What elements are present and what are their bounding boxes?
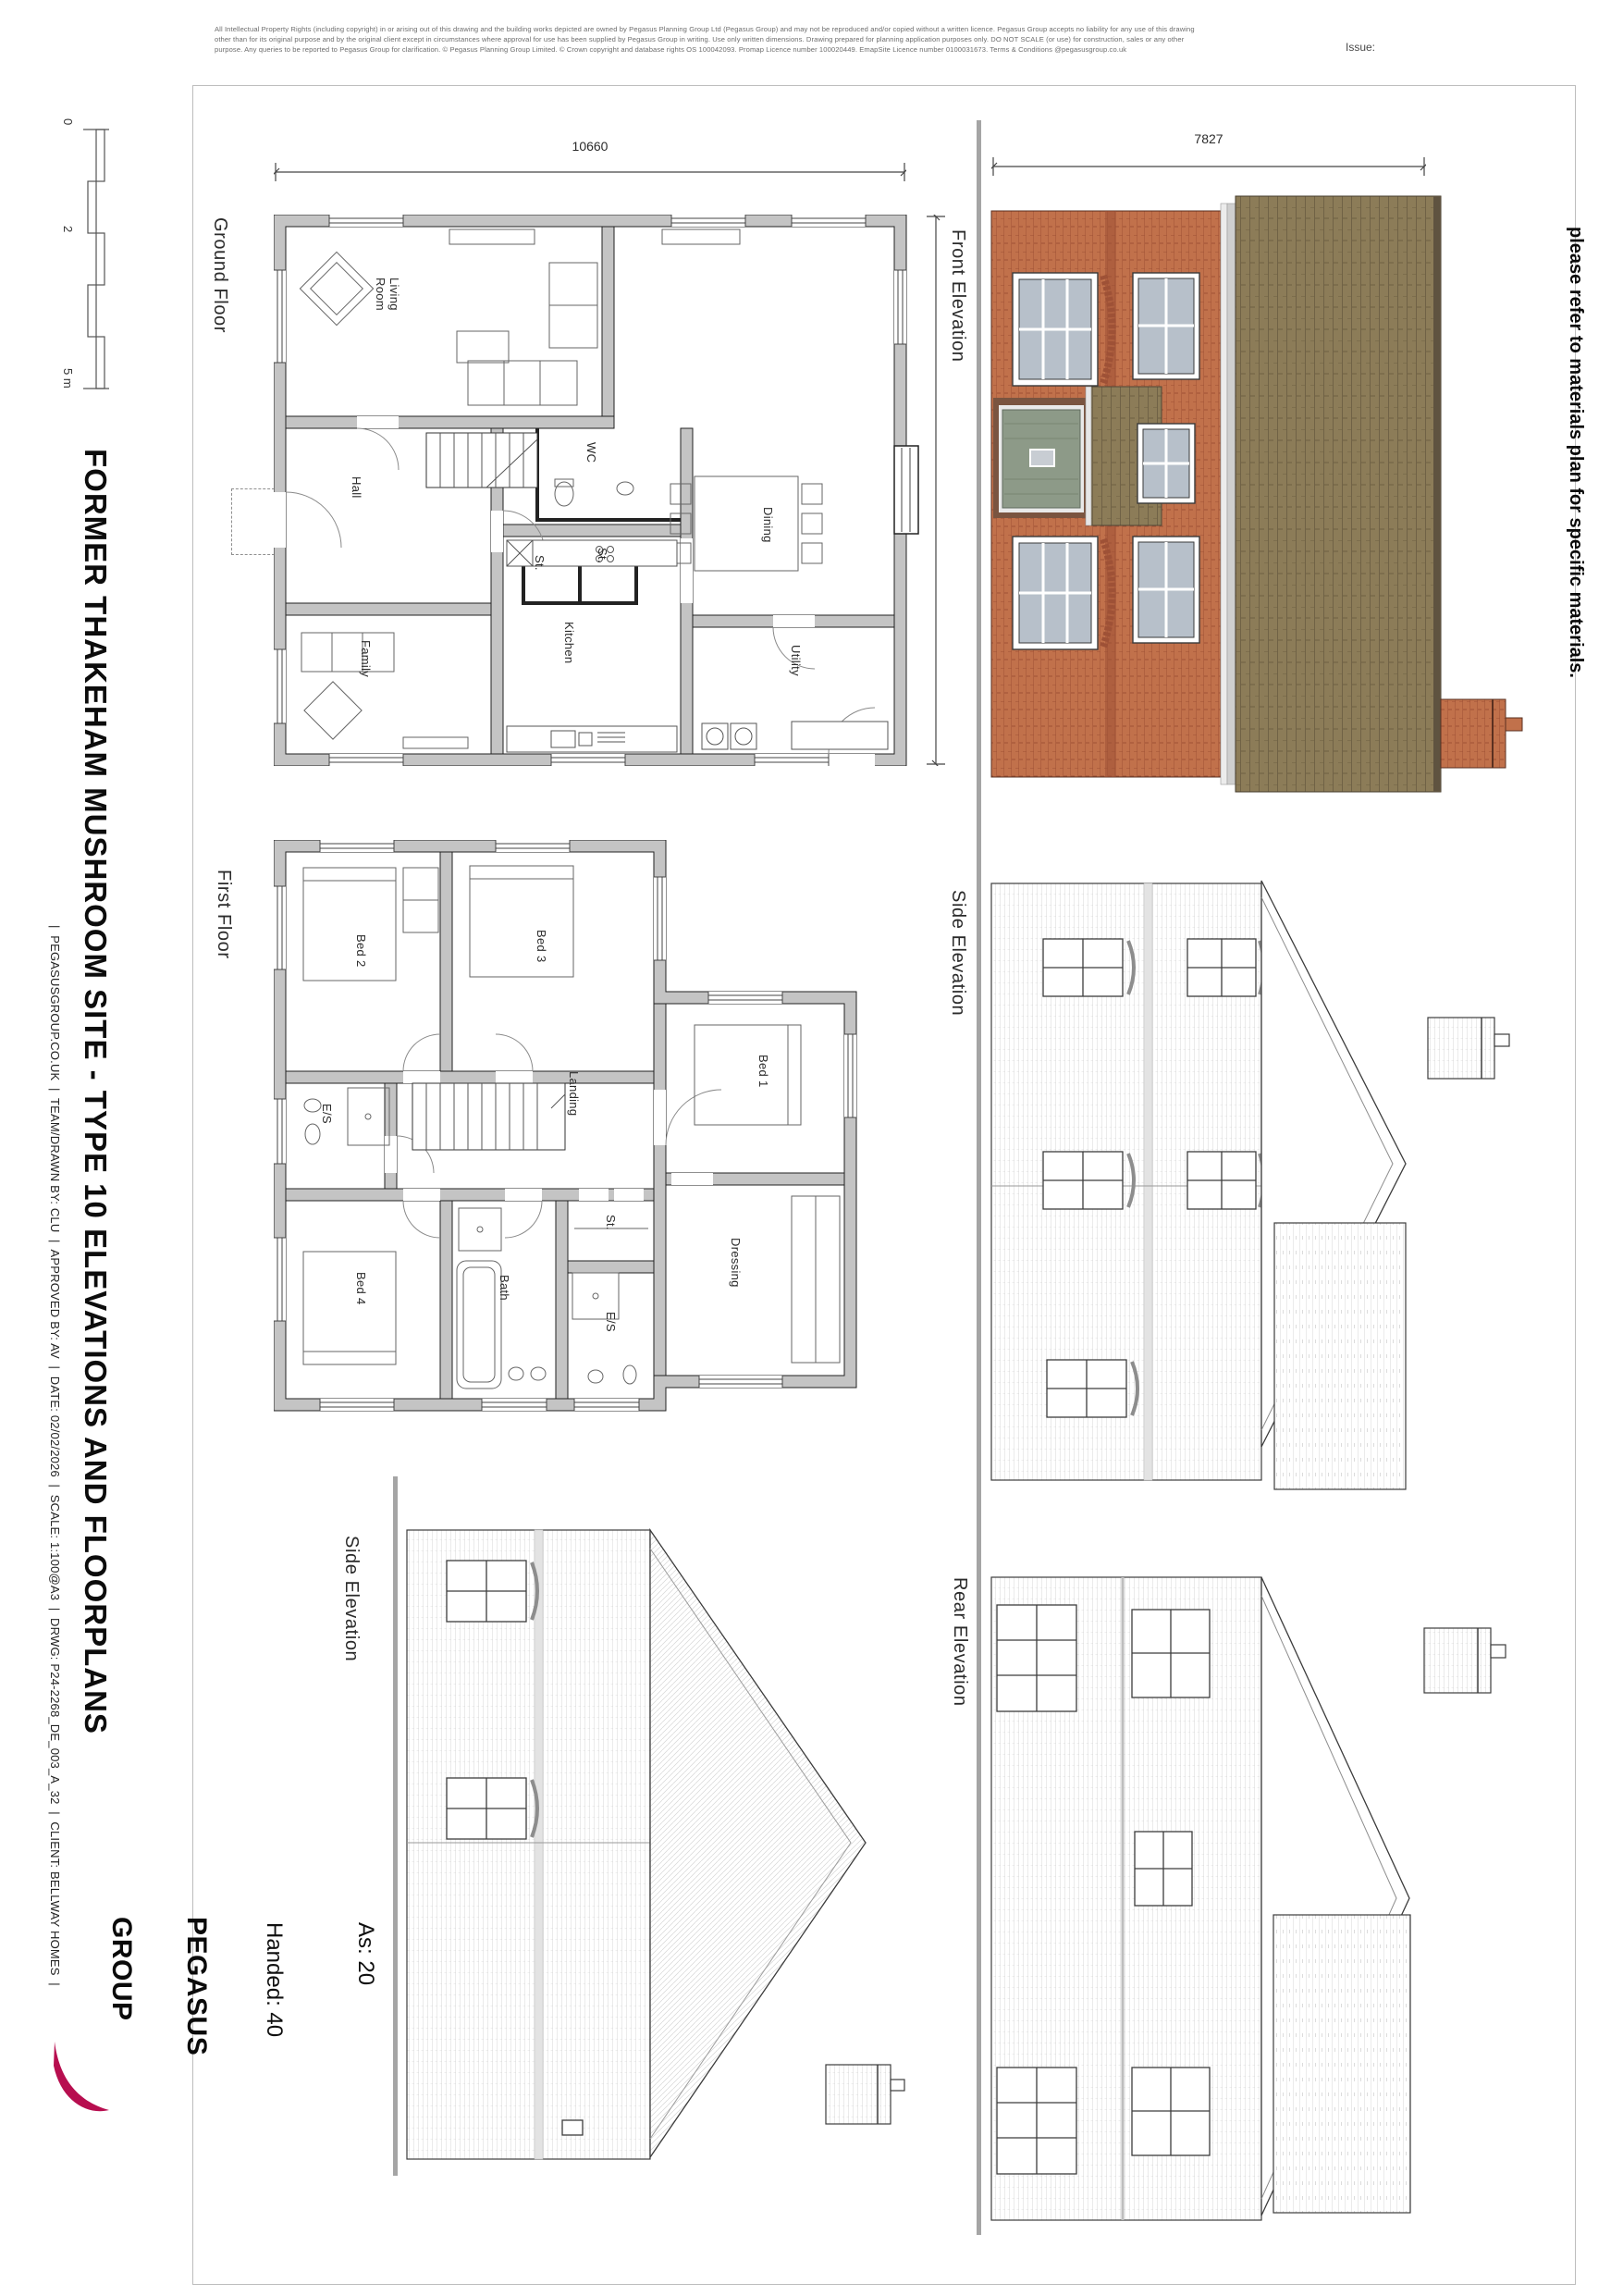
sheet-info-line: | PEGASUSGROUP.CO.UK | TEAM/DRAWN BY: CL… — [48, 925, 62, 1986]
scale-label-5m: 5 m — [61, 368, 75, 389]
scale-bar — [81, 118, 122, 396]
issue-label: Issue: — [1346, 41, 1375, 54]
side-elevation-left-label: Side Elevation — [340, 1536, 362, 1661]
front-ff-windows — [1133, 273, 1199, 643]
ff-stairs — [412, 1083, 565, 1150]
disclaimer-line-2: other than for its original purpose and … — [215, 34, 1232, 44]
sidel-gable-roof — [650, 1530, 866, 2157]
gf-outer-walls — [274, 215, 906, 766]
room-label-es-1: E/S — [320, 1104, 334, 1124]
front-gutter — [1227, 204, 1236, 784]
room-label-utility: Utility — [789, 645, 803, 676]
side-elevation-left — [396, 1473, 928, 2178]
first-floor-label: First Floor — [213, 870, 234, 959]
logo-swoosh-icon — [52, 2040, 111, 2117]
room-label-dressing: Dressing — [729, 1238, 743, 1288]
rear-chimney — [1424, 1628, 1506, 1693]
room-label-es-2: E/S — [604, 1312, 618, 1332]
note-line-2: please refer to materials plan for speci… — [1563, 196, 1588, 708]
room-label-bed-4: Bed 4 — [354, 1272, 368, 1304]
sidel-string-course — [535, 1530, 543, 2159]
scale-label-2: 2 — [61, 226, 75, 232]
porch-canopy-dashed — [231, 488, 275, 555]
dimension-line-10660 — [274, 157, 906, 181]
gf-stairs — [426, 433, 537, 488]
gf-bay-window — [894, 446, 918, 534]
drawing-sheet: All Intellectual Property Rights (includ… — [0, 0, 1623, 2296]
logo-line-group: GROUP — [109, 1917, 134, 2055]
dimension-line-7827 — [991, 152, 1426, 176]
room-label-family: Family — [359, 640, 373, 677]
room-label-st-3: St. — [604, 1215, 618, 1230]
front-door-porch — [993, 387, 1162, 525]
scale-label-0: 0 — [61, 118, 75, 125]
dimension-10660: 10660 — [274, 139, 906, 154]
first-floor-plan — [274, 840, 858, 1413]
side-elevation-right-label: Side Elevation — [947, 890, 968, 1016]
dimension-7827: 7827 — [991, 131, 1426, 146]
sider-string-course — [1144, 883, 1152, 1480]
plot-numbers-as: As: 20 — [350, 1922, 381, 2056]
sider-chimney — [1428, 1018, 1509, 1079]
gf-family-furniture — [301, 633, 468, 748]
ground-floor-label: Ground Floor — [209, 217, 230, 333]
side-elevation-right — [982, 860, 1537, 1499]
front-roof-ridge — [1433, 196, 1441, 792]
room-label-wc: WC — [584, 442, 598, 463]
rear-elevation — [982, 1554, 1537, 2246]
front-fascia — [1221, 204, 1227, 784]
elevation-ground-line-right — [977, 120, 981, 2235]
sider-rear-wing — [1274, 1223, 1406, 1489]
room-label-dining: Dining — [761, 507, 775, 543]
front-elevation-label: Front Elevation — [947, 229, 968, 363]
front-chimney — [1441, 699, 1522, 768]
room-label-bed-1: Bed 1 — [756, 1055, 770, 1087]
front-elevation — [982, 185, 1537, 796]
disclaimer-line-3: purpose. Any queries to be reported to P… — [215, 44, 1232, 55]
room-label-hall: Hall — [350, 476, 363, 499]
room-label-bed-2: Bed 2 — [354, 934, 368, 967]
room-label-st-1: St. — [533, 555, 547, 571]
sidel-facade — [407, 1530, 650, 2159]
room-label-bath: Bath — [498, 1275, 511, 1301]
room-label-bed-3: Bed 3 — [535, 930, 548, 962]
room-label-st-2: St. — [596, 548, 609, 563]
rear-wing — [1273, 1915, 1410, 2213]
gf-partitions — [523, 428, 681, 603]
copyright-disclaimer: All Intellectual Property Rights (includ… — [215, 24, 1232, 55]
gf-door-openings — [274, 416, 875, 766]
sheet-title: FORMER THAKEHAM MUSHROOM SITE - TYPE 10 … — [78, 449, 113, 1734]
front-roof-tiles — [1236, 196, 1441, 792]
gf-living-furniture — [300, 229, 597, 405]
gf-wc-fixtures — [555, 479, 633, 506]
plot-numbers-handed: Handed: 40 — [259, 1922, 289, 2056]
gf-utility-units — [702, 722, 888, 749]
room-label-landing: Landing — [567, 1071, 581, 1116]
rear-elevation-label: Rear Elevation — [949, 1577, 970, 1707]
gf-kitchen-units — [507, 540, 677, 752]
room-label-kitchen: Kitchen — [562, 622, 576, 663]
disclaimer-line-1: All Intellectual Property Rights (includ… — [215, 24, 1232, 34]
sidel-chimney — [826, 2065, 904, 2124]
room-label-living-room: Living Room — [370, 278, 401, 311]
